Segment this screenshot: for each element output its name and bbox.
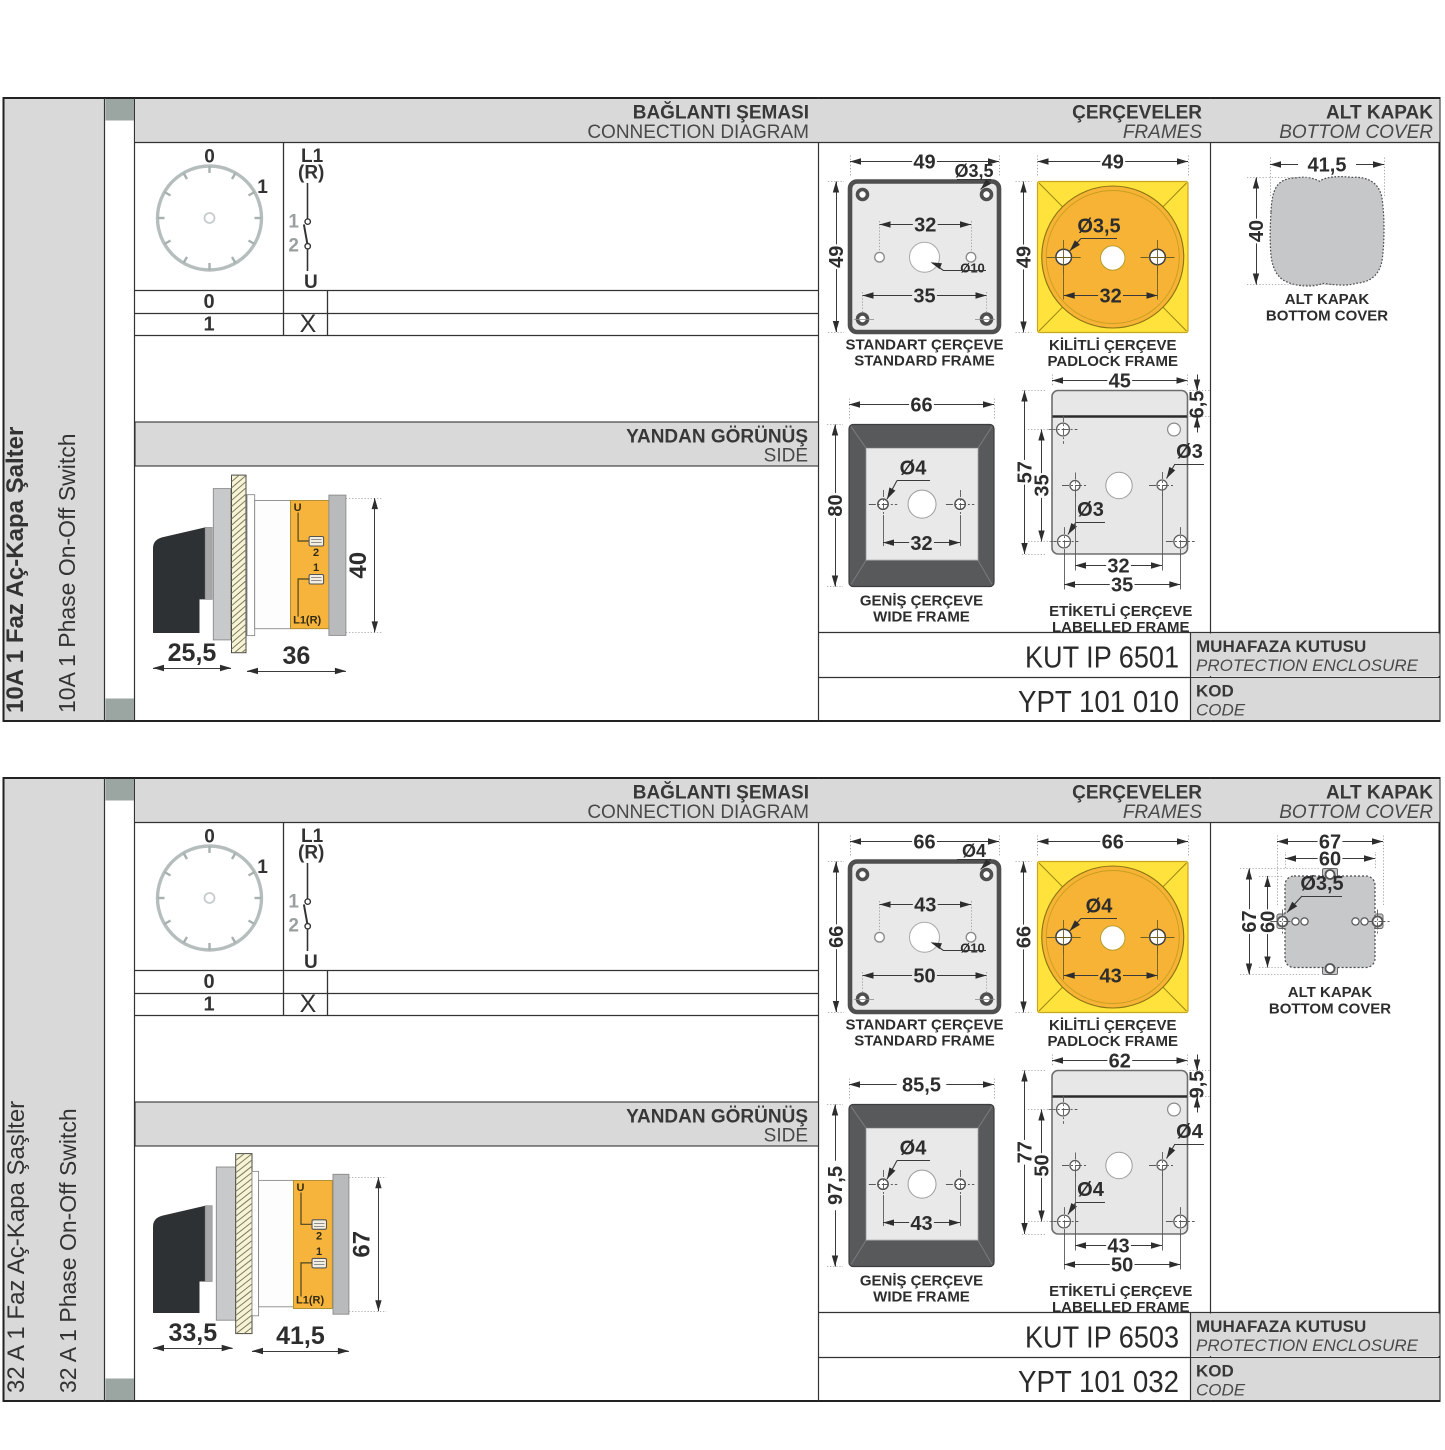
svg-text:BAĞLANTI ŞEMASI: BAĞLANTI ŞEMASI [633,102,809,124]
svg-text:L1(R): L1(R) [296,1295,324,1307]
svg-text:45: 45 [1109,371,1131,393]
svg-text:2: 2 [288,236,299,257]
svg-text:40: 40 [1246,220,1268,242]
svg-text:ÇERÇEVELER: ÇERÇEVELER [1072,783,1202,804]
svg-text:BAĞLANTI ŞEMASI: BAĞLANTI ŞEMASI [633,782,809,804]
svg-text:Ø3: Ø3 [1077,499,1104,521]
svg-text:SIDE: SIDE [764,1126,808,1147]
svg-text:FRAMES: FRAMES [1123,122,1203,143]
svg-text:PADLOCK FRAME: PADLOCK FRAME [1047,1033,1178,1050]
svg-text:Ø3,5: Ø3,5 [954,161,993,181]
svg-text:35: 35 [1111,575,1133,597]
svg-text:PROTECTION ENCLOSURE: PROTECTION ENCLOSURE [1196,656,1419,675]
svg-text:STANDARD FRAME: STANDARD FRAME [854,1033,995,1050]
svg-text:ETİKETLİ ÇERÇEVE: ETİKETLİ ÇERÇEVE [1049,1283,1192,1300]
svg-text:32: 32 [910,533,932,555]
svg-text:YANDAN GÖRÜNÜŞ: YANDAN GÖRÜNÜŞ [626,427,808,448]
svg-text:0: 0 [204,827,215,848]
svg-text:41,5: 41,5 [276,1322,325,1350]
svg-text:66: 66 [826,926,848,948]
svg-text:43: 43 [1099,966,1121,988]
svg-text:Ø4: Ø4 [900,1138,928,1160]
svg-text:KİLİTLİ ÇERÇEVE: KİLİTLİ ÇERÇEVE [1049,337,1177,354]
svg-text:43: 43 [914,895,936,917]
svg-text:32: 32 [1099,286,1121,308]
svg-text:ÇERÇEVELER: ÇERÇEVELER [1072,103,1202,124]
svg-text:STANDART ÇERÇEVE: STANDART ÇERÇEVE [845,1017,1003,1034]
svg-text:YANDAN GÖRÜNÜŞ: YANDAN GÖRÜNÜŞ [626,1107,808,1128]
svg-text:32: 32 [914,215,936,237]
svg-text:U: U [304,952,318,973]
svg-text:2: 2 [288,916,299,937]
svg-text:32 A 1 Phase On-Off Switch: 32 A 1 Phase On-Off Switch [55,1108,81,1393]
svg-text:1: 1 [288,212,299,233]
svg-text:MUHAFAZA KUTUSU: MUHAFAZA KUTUSU [1196,1317,1366,1336]
svg-text:43: 43 [910,1213,932,1235]
svg-text:10A 1 Phase On-Off Switch: 10A 1 Phase On-Off Switch [54,433,80,713]
svg-text:BOTTOM COVER: BOTTOM COVER [1279,802,1433,823]
svg-text:66: 66 [1014,926,1036,948]
svg-text:41,5: 41,5 [1308,155,1347,177]
svg-text:Ø4: Ø4 [962,841,986,861]
svg-text:CODE: CODE [1196,701,1246,720]
svg-text:49: 49 [826,246,848,268]
svg-text:Ø3,5: Ø3,5 [1300,873,1343,895]
svg-text:66: 66 [910,395,932,417]
svg-text:STANDART ÇERÇEVE: STANDART ÇERÇEVE [845,337,1003,354]
svg-text:80: 80 [825,494,847,516]
svg-text:U: U [297,1182,305,1194]
svg-text:1: 1 [203,314,214,336]
svg-text:WIDE FRAME: WIDE FRAME [873,1289,970,1306]
svg-text:L1(R): L1(R) [293,615,321,627]
svg-text:MUHAFAZA KUTUSU: MUHAFAZA KUTUSU [1196,637,1366,656]
svg-text:U: U [294,502,302,514]
svg-text:ALT KAPAK: ALT KAPAK [1285,291,1370,308]
svg-text:62: 62 [1109,1051,1131,1073]
svg-text:ALT KAPAK: ALT KAPAK [1288,984,1373,1001]
svg-text:(R): (R) [298,163,324,184]
svg-text:85,5: 85,5 [902,1075,941,1097]
svg-text:67: 67 [348,1231,375,1258]
svg-text:ALT KAPAK: ALT KAPAK [1326,783,1433,804]
svg-text:1: 1 [257,857,268,878]
svg-text:Ø4: Ø4 [900,458,928,480]
svg-text:Ø4: Ø4 [1176,1121,1204,1143]
svg-text:Ø4: Ø4 [1077,1179,1105,1201]
svg-text:9,5: 9,5 [1187,1071,1209,1099]
svg-text:YPT 101 032: YPT 101 032 [1018,1364,1179,1399]
svg-text:49: 49 [1014,246,1036,268]
svg-text:32 A 1 Faz Aç-Kapa Şaşlter: 32 A 1 Faz Aç-Kapa Şaşlter [3,1101,30,1393]
svg-text:0: 0 [203,291,214,313]
svg-text:(R): (R) [298,843,324,864]
svg-text:KUT IP 6501: KUT IP 6501 [1025,640,1179,675]
svg-text:X: X [300,990,317,1018]
svg-text:PROTECTION ENCLOSURE: PROTECTION ENCLOSURE [1196,1336,1419,1355]
svg-text:33,5: 33,5 [169,1319,218,1347]
svg-text:Ø4: Ø4 [1086,896,1114,918]
svg-text:FRAMES: FRAMES [1123,802,1203,823]
svg-text:36: 36 [283,642,311,670]
svg-text:KOD: KOD [1196,682,1234,701]
svg-text:10A 1 Faz Aç-Kapa Şalter: 10A 1 Faz Aç-Kapa Şalter [2,427,29,713]
svg-text:49: 49 [1102,152,1124,174]
svg-text:CODE: CODE [1196,1381,1246,1400]
svg-text:Ø3: Ø3 [1176,441,1203,463]
svg-text:Ø10: Ø10 [960,260,985,275]
svg-text:2: 2 [313,547,319,559]
svg-text:2: 2 [316,1230,322,1242]
svg-text:KUT IP 6503: KUT IP 6503 [1025,1320,1179,1355]
svg-text:60: 60 [1258,911,1280,933]
svg-text:GENİŞ ÇERÇEVE: GENİŞ ÇERÇEVE [860,1273,983,1290]
svg-text:PADLOCK FRAME: PADLOCK FRAME [1047,353,1178,370]
svg-text:BOTTOM COVER: BOTTOM COVER [1269,1001,1391,1018]
svg-text:Ø10: Ø10 [960,940,985,955]
svg-text:LABELLED FRAME: LABELLED FRAME [1052,619,1190,636]
svg-text:25,5: 25,5 [168,639,217,667]
svg-text:0: 0 [204,147,215,168]
svg-text:U: U [304,272,318,293]
svg-text:BOTTOM COVER: BOTTOM COVER [1279,122,1433,143]
svg-text:SIDE: SIDE [764,446,808,467]
svg-text:BOTTOM COVER: BOTTOM COVER [1266,308,1388,325]
svg-text:49: 49 [913,152,935,174]
svg-text:60: 60 [1319,849,1341,871]
svg-text:X: X [300,310,317,338]
svg-text:YPT 101 010: YPT 101 010 [1018,684,1179,719]
svg-text:1: 1 [257,177,268,198]
svg-text:35: 35 [913,286,935,308]
svg-text:CONNECTION DIAGRAM: CONNECTION DIAGRAM [587,802,809,823]
svg-text:1: 1 [313,562,319,574]
svg-text:50: 50 [1032,1154,1054,1176]
svg-text:40: 40 [345,552,372,579]
svg-text:35: 35 [1032,474,1054,496]
svg-text:50: 50 [1111,1255,1133,1277]
svg-text:1: 1 [203,994,214,1016]
svg-text:0: 0 [203,971,214,993]
svg-text:6,5: 6,5 [1187,391,1209,419]
svg-text:KİLİTLİ ÇERÇEVE: KİLİTLİ ÇERÇEVE [1049,1017,1177,1034]
svg-text:50: 50 [913,966,935,988]
svg-text:KOD: KOD [1196,1362,1234,1381]
svg-text:1: 1 [288,892,299,913]
svg-text:ALT KAPAK: ALT KAPAK [1326,103,1433,124]
svg-text:WIDE FRAME: WIDE FRAME [873,609,970,626]
svg-text:66: 66 [913,832,935,854]
svg-text:GENİŞ ÇERÇEVE: GENİŞ ÇERÇEVE [860,593,983,610]
svg-text:97,5: 97,5 [825,1166,847,1205]
svg-text:CONNECTION DIAGRAM: CONNECTION DIAGRAM [587,122,809,143]
svg-text:1: 1 [316,1246,322,1258]
svg-text:ETİKETLİ ÇERÇEVE: ETİKETLİ ÇERÇEVE [1049,603,1192,620]
svg-text:Ø3,5: Ø3,5 [1077,216,1120,238]
svg-text:LABELLED FRAME: LABELLED FRAME [1052,1299,1190,1316]
svg-text:STANDARD FRAME: STANDARD FRAME [854,353,995,370]
svg-text:66: 66 [1102,832,1124,854]
